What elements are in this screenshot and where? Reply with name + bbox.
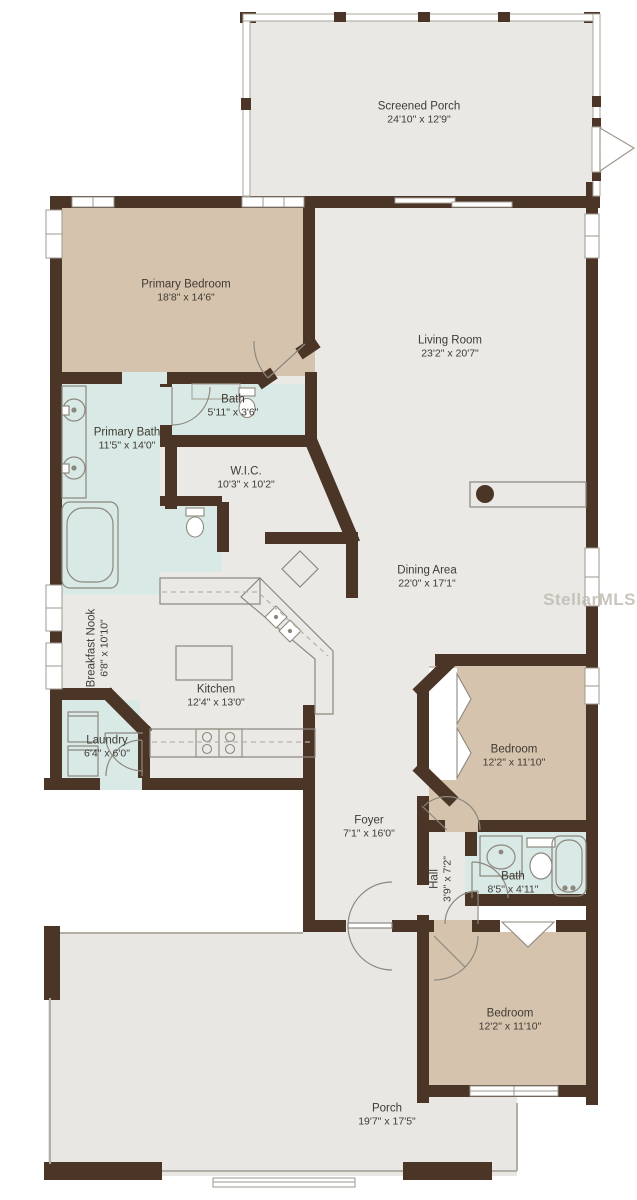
- stellar-mls-watermark: StellarMLS: [543, 590, 636, 610]
- upper-cabinet-dashes: [152, 592, 328, 742]
- primary-bathtub-symbol: [62, 502, 118, 588]
- refrigerator-symbol: [282, 551, 318, 587]
- floor-plan: Screened Porch 24'10" x 12'9" Primary Be…: [0, 0, 637, 1200]
- sliding-door-living: [470, 482, 586, 507]
- room-label-dining-area: Dining Area 22'0" x 17'1": [397, 564, 456, 591]
- room-label-bath-hall: Bath 8'5" x 4'11": [488, 870, 539, 897]
- room-label-wic: W.I.C. 10'3" x 10'2": [217, 465, 275, 492]
- room-label-screened-porch: Screened Porch 24'10" x 12'9": [378, 100, 460, 127]
- room-label-primary-bedroom: Primary Bedroom 18'8" x 14'6": [141, 278, 230, 305]
- room-label-bedroom-bottom: Bedroom 12'2" x 11'10": [479, 1007, 542, 1034]
- room-label-porch: Porch 19'7" x 17'5": [358, 1102, 416, 1129]
- primary-bath-vanity: [62, 386, 86, 498]
- porch-step: [213, 1178, 355, 1187]
- porch-edges: [50, 933, 517, 1171]
- windows: [46, 197, 599, 1096]
- porch-exit-door: [592, 127, 634, 172]
- room-label-primary-bath: Primary Bath 11'5" x 14'0": [94, 426, 160, 453]
- bifold-doors: [457, 674, 554, 947]
- room-label-laundry: Laundry 6'4" x 6'0": [84, 734, 130, 761]
- room-label-kitchen: Kitchen 12'4" x 13'0": [187, 683, 245, 710]
- screen-posts: [241, 12, 601, 181]
- room-label-bedroom-mid: Bedroom 12'2" x 11'10": [483, 743, 546, 770]
- range-symbol: [196, 729, 242, 757]
- room-label-bath-primary-wc: Bath 5'11" x 3'6": [208, 393, 259, 420]
- room-label-foyer: Foyer 7'1" x 16'0": [343, 814, 395, 841]
- room-label-hall: Hall 3'9" x 7'2": [428, 856, 455, 902]
- kitchen-sink-symbol: [265, 606, 301, 642]
- primary-toilet-symbol: [186, 508, 204, 537]
- sliding-door-porch: [395, 198, 512, 207]
- room-label-living-room: Living Room 23'2" x 20'7": [418, 334, 482, 361]
- room-label-breakfast-nook: Breakfast Nook 6'8" x 10'10": [85, 609, 112, 688]
